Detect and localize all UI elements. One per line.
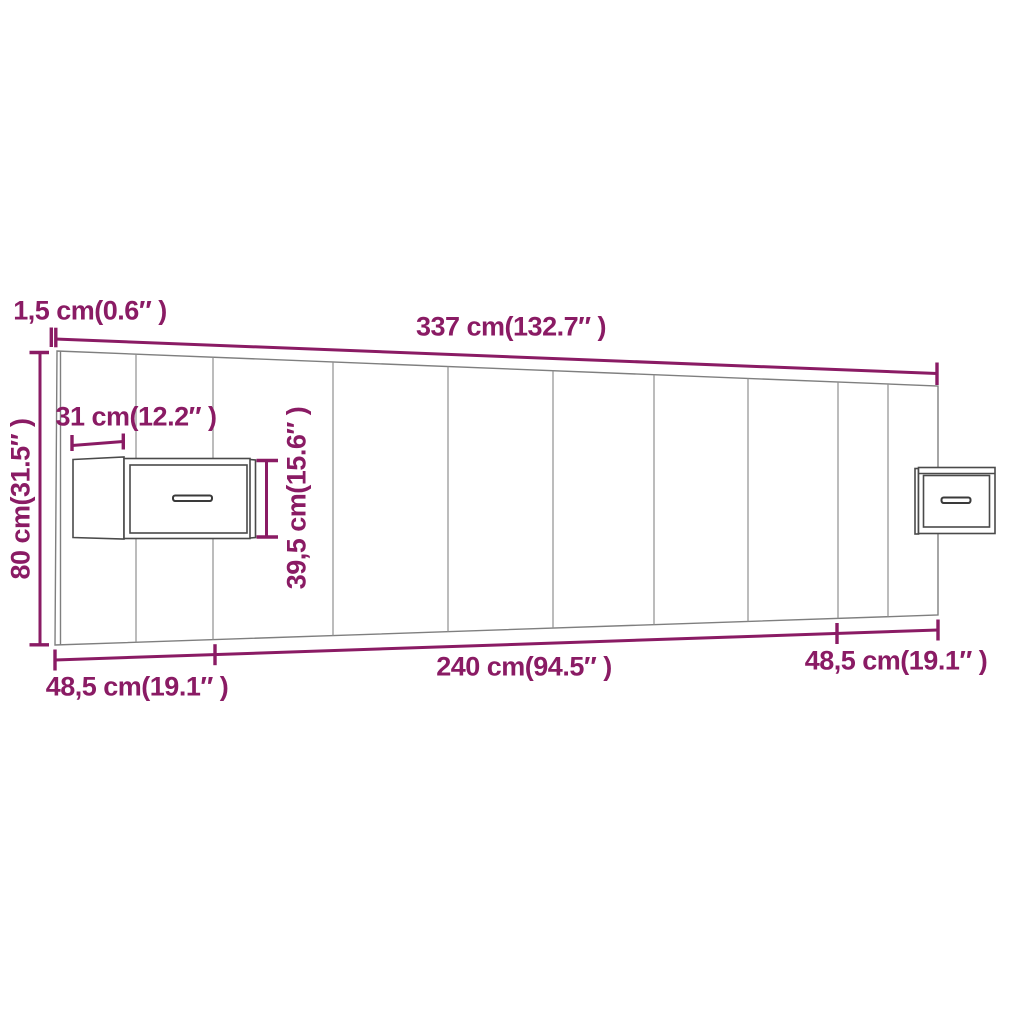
label-cabinet-height: 39,5 cm(15.6″ ): [282, 407, 313, 590]
right-cabinet-handle: [942, 498, 971, 504]
label-headboard-height: 80 cm(31.5″ ): [6, 418, 37, 579]
left-cabinet-side-panel: [73, 457, 124, 539]
right-cabinet: [915, 468, 995, 535]
diagram-canvas: [0, 0, 1024, 1024]
label-left-section: 48,5 cm(19.1″ ): [46, 672, 229, 703]
label-total-width: 337 cm(132.7″ ): [416, 312, 606, 343]
label-cabinet-width: 31 cm(12.2″ ): [55, 402, 216, 433]
left-cabinet: [73, 457, 256, 539]
left-cabinet-handle: [173, 496, 212, 502]
dim-thickness: [51, 328, 56, 348]
label-right-section: 48,5 cm(19.1″ ): [805, 646, 988, 677]
product-dimension-diagram: 1,5 cm(0.6″ ) 337 cm(132.7″ ) 31 cm(12.2…: [0, 0, 1024, 1024]
label-middle-section: 240 cm(94.5″ ): [436, 652, 612, 683]
label-thickness: 1,5 cm(0.6″ ): [13, 296, 167, 327]
